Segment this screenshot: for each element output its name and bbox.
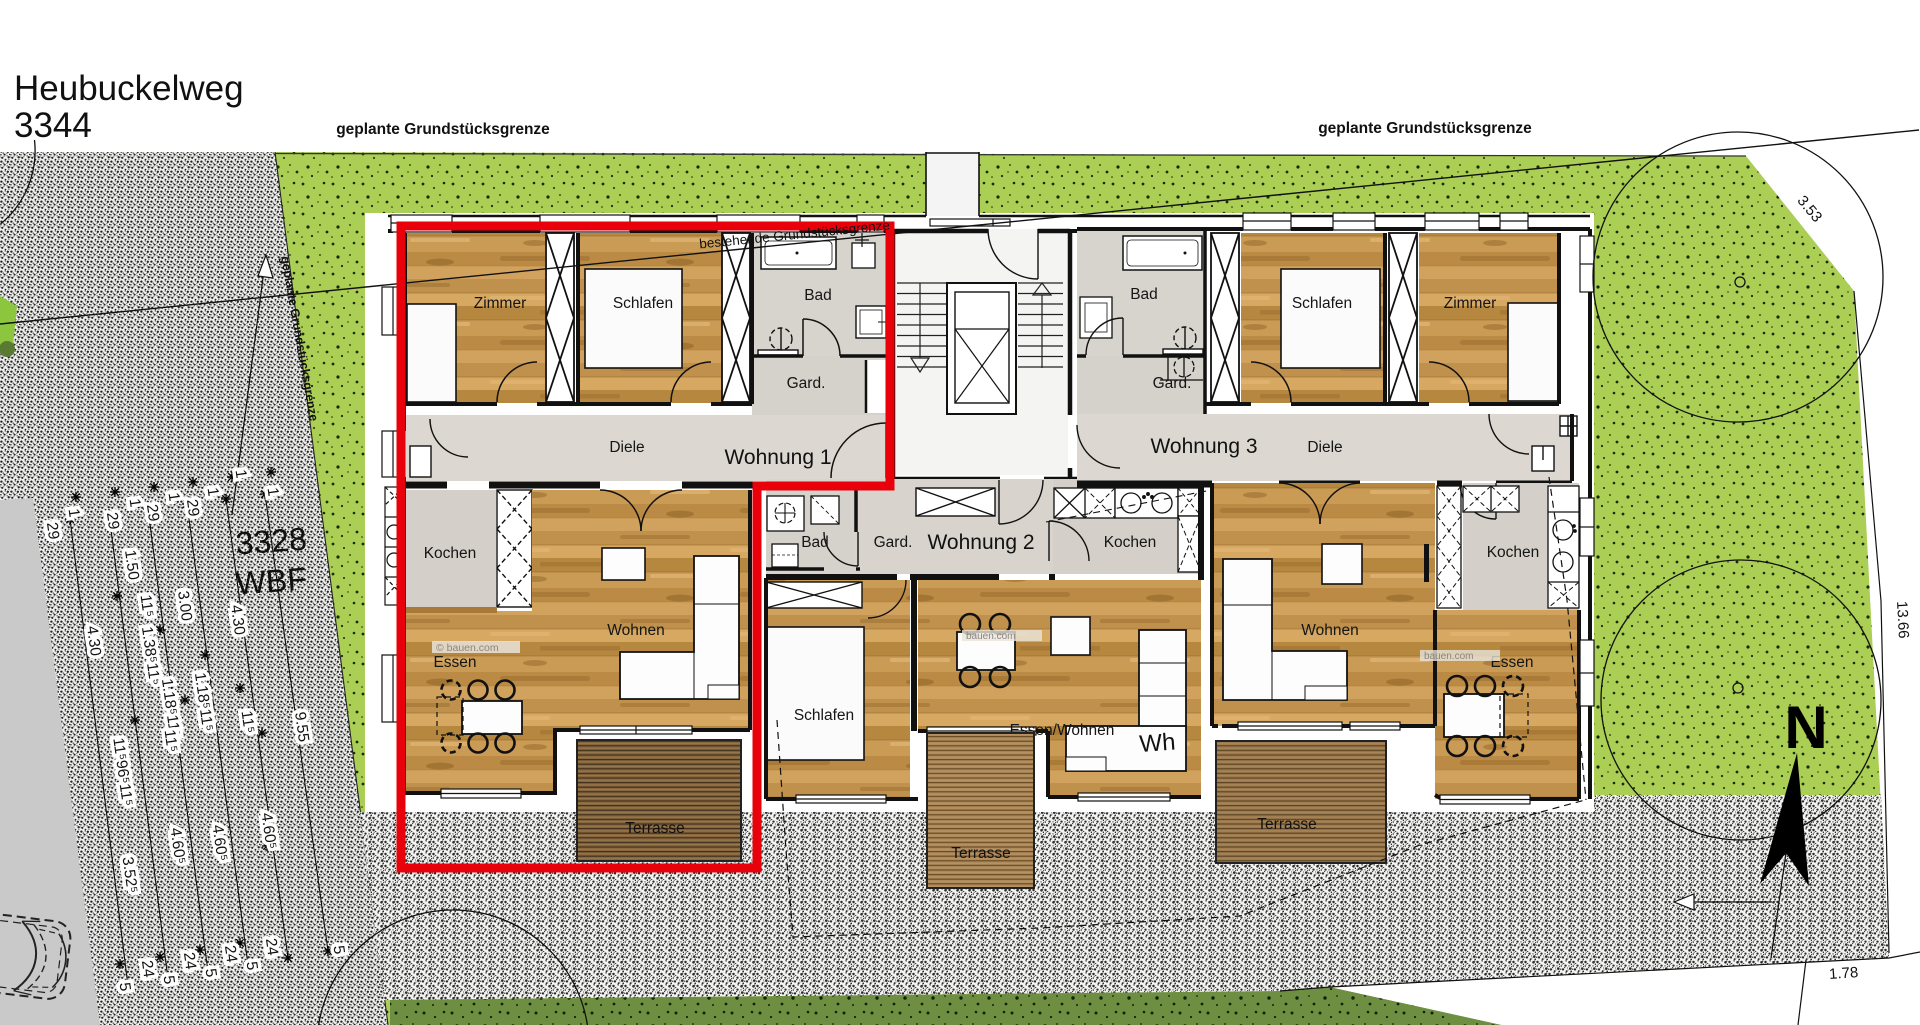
svg-text:Essen: Essen	[433, 654, 476, 671]
svg-text:24: 24	[138, 959, 157, 979]
svg-text:24: 24	[262, 937, 281, 957]
svg-text:Kochen: Kochen	[1104, 534, 1157, 551]
svg-text:Bad: Bad	[801, 534, 829, 551]
svg-text:11⁵: 11⁵	[238, 710, 258, 735]
svg-text:Wohnen: Wohnen	[1301, 622, 1358, 639]
svg-text:Kochen: Kochen	[424, 545, 477, 562]
svg-text:Diele: Diele	[609, 439, 644, 456]
svg-text:© bauen.com: © bauen.com	[436, 642, 499, 654]
svg-text:Wohnung 2: Wohnung 2	[927, 531, 1034, 554]
svg-text:Wh: Wh	[1139, 729, 1177, 758]
svg-text:Kochen: Kochen	[1487, 544, 1540, 561]
svg-text:N: N	[1784, 694, 1827, 761]
svg-text:Heubuckelweg: Heubuckelweg	[14, 69, 244, 108]
svg-text:geplante Grundstücksgrenze: geplante Grundstücksgrenze	[336, 121, 550, 138]
svg-text:24: 24	[180, 951, 199, 971]
svg-text:1.78: 1.78	[1829, 964, 1859, 983]
svg-text:29: 29	[103, 511, 122, 530]
svg-text:Gard.: Gard.	[874, 534, 913, 551]
svg-text:Wohnen: Wohnen	[607, 622, 664, 639]
svg-text:11⁵: 11⁵	[137, 594, 157, 619]
svg-text:bauen.com: bauen.com	[966, 631, 1015, 642]
svg-text:29: 29	[183, 498, 202, 517]
svg-text:Schlafen: Schlafen	[794, 707, 854, 724]
svg-text:Bad: Bad	[804, 287, 832, 304]
svg-text:Zimmer: Zimmer	[1444, 295, 1497, 312]
svg-text:29: 29	[43, 521, 62, 540]
svg-text:Bad: Bad	[1130, 286, 1158, 303]
svg-text:13.66: 13.66	[1893, 601, 1912, 639]
svg-text:Terrasse: Terrasse	[625, 820, 684, 837]
svg-text:3344: 3344	[14, 106, 92, 145]
svg-text:29: 29	[143, 503, 162, 522]
svg-text:24: 24	[221, 944, 240, 964]
svg-text:Gard.: Gard.	[787, 375, 826, 392]
svg-text:Wohnung 3: Wohnung 3	[1150, 435, 1257, 458]
svg-text:Diele: Diele	[1307, 439, 1342, 456]
svg-text:Schlafen: Schlafen	[1292, 295, 1352, 312]
svg-text:bauen.com: bauen.com	[1424, 651, 1473, 662]
svg-text:WBF: WBF	[235, 561, 308, 602]
svg-text:Terrasse: Terrasse	[1257, 816, 1316, 833]
svg-text:Zimmer: Zimmer	[474, 295, 527, 312]
svg-text:Terrasse: Terrasse	[951, 845, 1010, 862]
svg-text:Schlafen: Schlafen	[613, 295, 673, 312]
svg-text:11⁵: 11⁵	[161, 729, 181, 754]
svg-text:Wohnung 1: Wohnung 1	[724, 446, 831, 469]
svg-text:Gard.: Gard.	[1153, 375, 1192, 392]
svg-text:geplante Grundstücksgrenze: geplante Grundstücksgrenze	[1318, 120, 1532, 137]
